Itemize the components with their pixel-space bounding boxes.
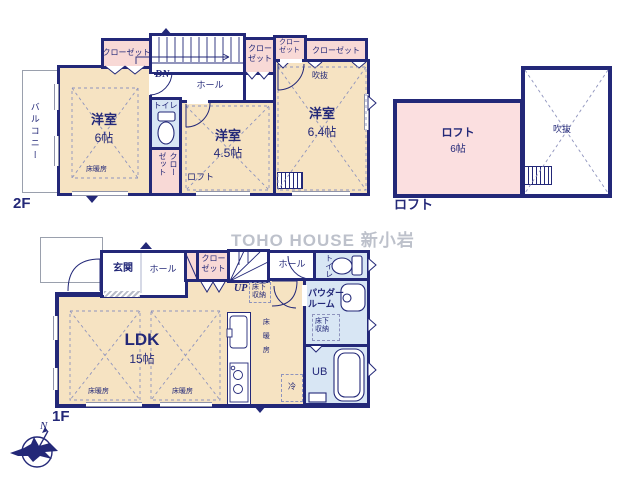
fridge-label: 冷 [283,382,301,392]
loft-room-name: ロフト [428,127,488,140]
floor-label-loft: ロフト [394,197,433,213]
compass-bird [10,437,58,462]
void-label-2f: 吹抜 [300,71,340,81]
room6-name: 洋室 [74,112,134,128]
loft-hatch-label: ロフト [187,172,214,183]
hall-front-label: ホール [141,264,185,275]
floor-heating-kitchen: 床暖房 [261,318,269,372]
floor-heating-left: 床暖房 [88,388,109,396]
closet-label-1f: クローゼット [200,254,227,273]
closet-label: クローゼット [278,39,301,56]
toilet-label-1f: トイレ [324,254,334,280]
floor-label-1f: 1F [52,408,70,426]
unit-bath-label: UB [312,366,327,379]
kitchen-stove-fixture [230,363,248,402]
floor-heating-label: 床暖房 [86,166,107,174]
stairs-up-label: UP [234,283,247,295]
powder-room-label: パウダールーム [308,288,348,310]
floor-label-2f: 2F [13,195,31,213]
hall-back-label: ホール [272,259,312,270]
room45-name: 洋室 [198,128,258,144]
room64-name: 洋室 [292,106,352,122]
ldk-name: LDK [92,330,192,350]
floor-plan-canvas: バルコニー クローゼット クローゼット クローゼット クローゼット DN ホール… [0,0,640,480]
kitchen-sink-fixture [227,316,247,348]
hall-label-2f: ホール [185,80,235,91]
stairs-treads-1f [230,251,268,281]
toilet-label-2f: トイレ [151,101,180,111]
floor-heating-right: 床暖房 [172,388,193,396]
toilet-fixture-1f [332,256,362,275]
closet-label: クローゼット [98,48,155,58]
stairs-down-label: DN [155,69,169,81]
closet-label: クローゼット [247,44,273,63]
toilet-fixture-2f [158,112,175,144]
loft-room-size: 6帖 [428,144,488,156]
ldk-size: 15帖 [92,352,192,366]
room6-size: 6帖 [74,131,134,145]
watermark: TOHO HOUSE 新小岩 [231,226,415,251]
closet-label: クローゼット [306,46,366,56]
underfloor-storage-2-label: 床下収納 [315,318,330,335]
closet-label-vertical: クローゼット [154,152,179,182]
compass-north-label: N [39,420,48,432]
balcony-label: バルコニー [29,102,40,172]
void-label-loft: 吹抜 [542,124,582,135]
room45-size: 4.5帖 [198,146,258,160]
compass: N [10,420,58,467]
entrance-label: 玄関 [103,263,143,275]
underfloor-storage-1-label: 床下収納 [252,284,267,301]
room64-size: 6.4帖 [292,125,352,139]
